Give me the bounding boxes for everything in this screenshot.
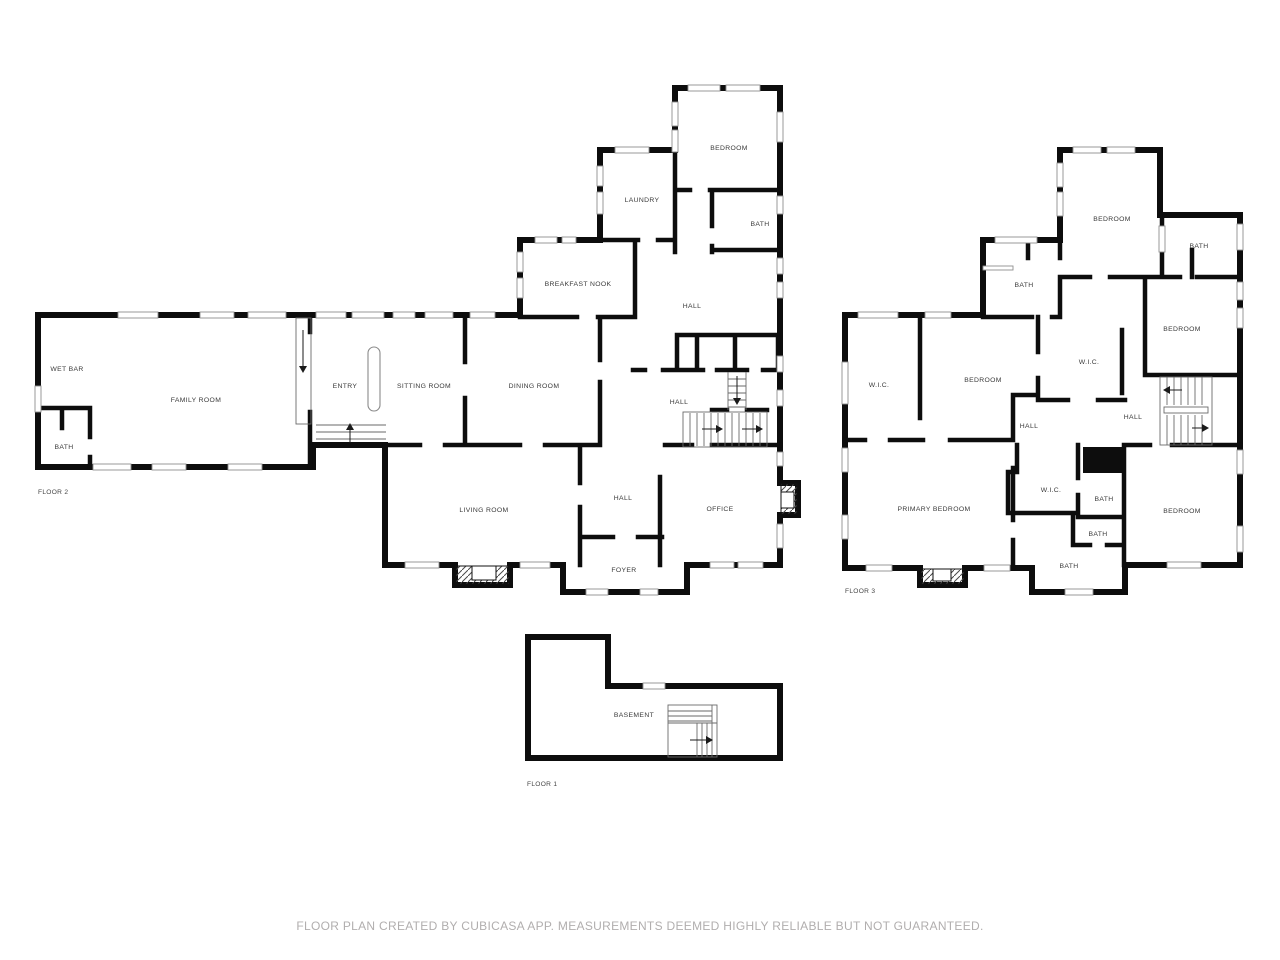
room-label-hall-lower: HALL xyxy=(614,495,632,502)
room-label-living-room: LIVING ROOM xyxy=(459,507,508,514)
window xyxy=(228,464,262,470)
window xyxy=(562,237,576,243)
window xyxy=(470,312,495,318)
window xyxy=(1107,147,1135,153)
room-label-wic-lower: W.I.C. xyxy=(1041,487,1062,494)
room-label-wic-left: W.I.C. xyxy=(869,382,890,389)
window xyxy=(1237,450,1243,474)
room-label-basement: BASEMENT xyxy=(614,712,654,719)
window xyxy=(35,386,41,412)
room-label-bath-bottom: BATH xyxy=(1059,563,1078,570)
room-label-bedroom-top: BEDROOM xyxy=(1093,216,1131,223)
chimney xyxy=(1083,447,1122,473)
window xyxy=(842,362,848,404)
window xyxy=(984,565,1010,571)
room-label-bedroom-center: BEDROOM xyxy=(964,377,1002,384)
window xyxy=(586,589,608,595)
window xyxy=(640,589,658,595)
window xyxy=(777,282,783,298)
window xyxy=(425,312,453,318)
window xyxy=(866,565,892,571)
room-label-sitting-room: SITTING ROOM xyxy=(397,383,451,390)
window xyxy=(1237,308,1243,328)
primary-bedroom-fireplace xyxy=(921,569,964,584)
window xyxy=(517,278,523,298)
room-label-hall-center: HALL xyxy=(1020,423,1038,430)
window xyxy=(1237,526,1243,552)
room-label-wic-center: W.I.C. xyxy=(1079,359,1100,366)
window xyxy=(738,562,763,568)
room-label-bath-mid: BATH xyxy=(1094,496,1113,503)
room-label-bedroom-right: BEDROOM xyxy=(1163,326,1201,333)
window xyxy=(1073,147,1101,153)
window xyxy=(726,85,760,91)
room-label-dining-room: DINING ROOM xyxy=(509,383,560,390)
room-label-wet-bar: WET BAR xyxy=(50,366,83,373)
window xyxy=(710,562,734,568)
floor-plan-page: WET BAR FAMILY ROOM BATH ENTRY SITTING R… xyxy=(0,0,1280,960)
room-label-family-room: FAMILY ROOM xyxy=(171,397,221,404)
window xyxy=(842,448,848,472)
window xyxy=(1065,589,1093,595)
room-label-hall-upper: HALL xyxy=(683,303,701,310)
window xyxy=(615,147,649,153)
window xyxy=(777,112,783,142)
window xyxy=(316,312,346,318)
window xyxy=(597,192,603,214)
window xyxy=(535,237,557,243)
window xyxy=(858,312,898,318)
window xyxy=(1237,282,1243,300)
footer-disclaimer: FLOOR PLAN CREATED BY CUBICASA APP. MEAS… xyxy=(296,919,983,933)
window xyxy=(93,464,131,470)
room-label-bath-upper: BATH xyxy=(750,221,769,228)
room-label-hall-mid: HALL xyxy=(670,399,688,406)
window xyxy=(152,464,186,470)
page-background xyxy=(0,0,1280,960)
window xyxy=(672,130,678,152)
window xyxy=(520,562,550,568)
window xyxy=(1159,226,1165,252)
window xyxy=(672,102,678,126)
room-label-bedroom: BEDROOM xyxy=(710,145,748,152)
room-label-bath-small: BATH xyxy=(1088,531,1107,538)
window xyxy=(777,196,783,214)
floor2-label: FLOOR 2 xyxy=(38,489,68,496)
window xyxy=(405,562,439,568)
window xyxy=(248,312,286,318)
window xyxy=(1057,163,1063,187)
room-label-bedroom-bottom: BEDROOM xyxy=(1163,508,1201,515)
window xyxy=(118,312,158,318)
window xyxy=(688,85,720,91)
thin-shelf xyxy=(983,266,1013,270)
window xyxy=(777,452,783,466)
window xyxy=(1167,562,1201,568)
room-label-bath: BATH xyxy=(54,444,73,451)
window xyxy=(777,258,783,274)
window xyxy=(393,312,415,318)
room-label-entry: ENTRY xyxy=(333,383,358,390)
room-label-bath-top-right: BATH xyxy=(1189,243,1208,250)
floor3-label: FLOOR 3 xyxy=(845,588,875,595)
window xyxy=(842,515,848,539)
window xyxy=(1057,192,1063,216)
window xyxy=(200,312,234,318)
room-label-laundry: LAUNDRY xyxy=(625,197,660,204)
floor1-windows xyxy=(643,683,665,689)
window xyxy=(777,390,783,406)
living-room-fireplace xyxy=(456,566,509,584)
office-fireplace xyxy=(781,484,797,514)
room-label-office: OFFICE xyxy=(706,506,733,513)
room-label-hall-stairs: HALL xyxy=(1124,414,1142,421)
room-label-breakfast-nook: BREAKFAST NOOK xyxy=(545,281,612,288)
room-label-foyer: FOYER xyxy=(611,567,636,574)
room-label-bath-top-left: BATH xyxy=(1014,282,1033,289)
window xyxy=(777,524,783,548)
window xyxy=(925,312,951,318)
window xyxy=(517,252,523,272)
window xyxy=(352,312,384,318)
window xyxy=(777,356,783,372)
window xyxy=(597,166,603,186)
window xyxy=(995,237,1037,243)
window xyxy=(1237,224,1243,250)
floor-plan-canvas: WET BAR FAMILY ROOM BATH ENTRY SITTING R… xyxy=(0,0,1280,960)
room-label-primary-bedroom: PRIMARY BEDROOM xyxy=(898,506,971,513)
window xyxy=(643,683,665,689)
floor1-label: FLOOR 1 xyxy=(527,781,557,788)
